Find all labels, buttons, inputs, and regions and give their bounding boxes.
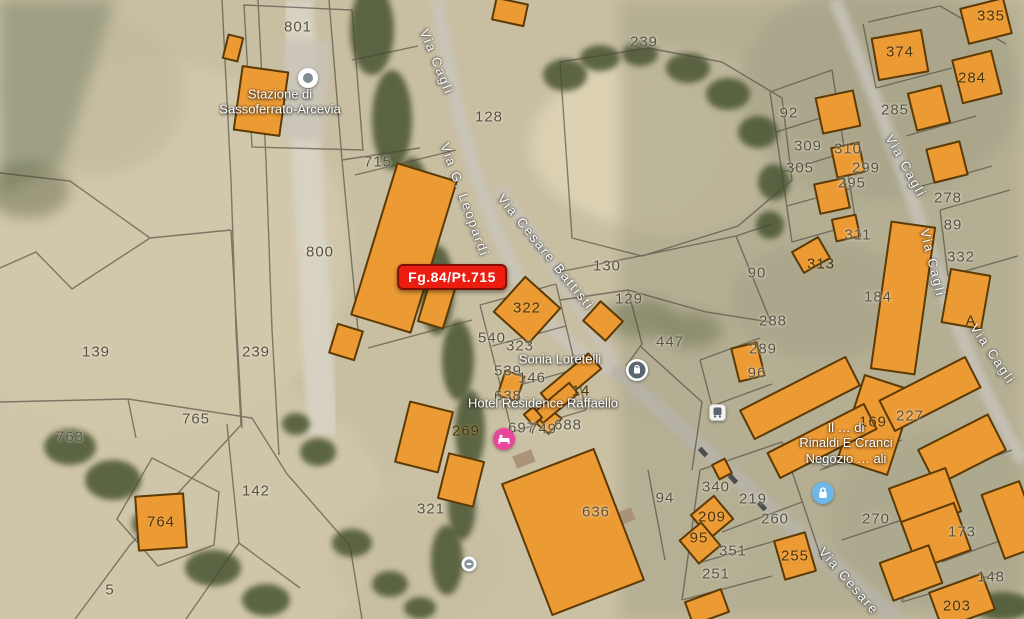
parcel-label: 148 [977,569,1005,586]
street-name-label: Via Cesare Battisti [495,191,598,313]
sonia-loretelli-label: Sonia Loretelli [519,351,601,366]
parcel-label: 95 [690,530,709,547]
parcel-label: 332 [947,249,975,266]
parcel-label: 129 [615,291,643,308]
train-station-label: Stazione diSassoferrato-Arcevia [219,87,340,118]
parcel-label: 139 [82,344,110,361]
poi-label-line: Rinaldi E Cranci [799,435,892,450]
street-name-label: Via Cagli [967,321,1018,387]
parcel-label: 289 [749,341,777,358]
parcel-label: 447 [656,334,684,351]
street-name-label: Via Cagli [883,132,930,200]
parcel-label: 335 [977,8,1005,25]
parcel-label: 313 [807,256,835,273]
parcel-label: 309 [794,138,822,155]
parcel-label: 260 [761,511,789,528]
parcel-label: 94 [656,490,675,507]
street-name-label: Via Cagli [917,227,948,298]
parcel-label: 311 [845,227,872,244]
badge-text: Fg.84/Pt.715 [408,269,496,285]
parcel-label: 130 [593,258,621,275]
parcel-label: 285 [881,102,909,119]
parcel-label: 203 [943,598,971,615]
parcel-label: 219 [739,491,767,508]
parcel-label: 288 [759,313,787,330]
parcel-label: 305 [786,160,814,177]
parcel-label: 173 [948,524,976,541]
parcel-label: 374 [886,44,914,61]
parcel-label: 96 [748,365,767,382]
parcel-label: 636 [582,504,610,521]
poi-label-line: Negozio … ali [799,451,892,466]
parcel-label: 540 [478,330,506,347]
poi-label-line: Stazione di [219,87,340,102]
poi-label-line: Hotel Residence Raffaello [468,395,618,410]
parcel-label: 715 [364,154,392,171]
parcel-label: 278 [934,190,962,207]
hotel-residence-raffaello-label: Hotel Residence Raffaello [468,395,618,410]
parcel-label: 765 [182,411,210,428]
street-name-label: Via Cagli [417,27,457,97]
parcel-label: 146 [518,370,546,387]
poi-label-line: Sonia Loretelli [519,351,601,366]
parcel-label: 239 [630,34,658,51]
parcel-label: 142 [242,483,270,500]
labels-layer: 8012393743352841289228571530931030529929… [0,0,1024,619]
parcel-label: 92 [780,105,799,122]
parcel-label: 321 [417,501,445,518]
parcel-label: 351 [719,543,747,560]
poi-label-line: Il … di [799,420,892,435]
parcel-label: 284 [958,70,986,87]
parcel-label: 801 [284,19,312,36]
parcel-label: 209 [698,509,726,526]
parcel-label: 89 [944,217,963,234]
parcel-label: 239 [242,344,270,361]
parcel-label: 688 [554,417,582,434]
parcel-label: 184 [864,289,892,306]
poi-label-line: Sassoferrato-Arcevia [219,102,340,117]
parcel-label: 340 [702,479,730,496]
parcel-label: 800 [306,244,334,261]
satellite-cadastral-map[interactable]: 8012393743352841289228571530931030529929… [0,0,1024,619]
parcel-label: 270 [862,511,890,528]
rinaldi-store-label: Il … diRinaldi E CranciNegozio … ali [799,420,892,466]
street-name-label: Via G. Leopardi [437,141,492,259]
parcel-label: 255 [781,548,809,565]
parcel-label: 764 [147,514,175,531]
parcel-label: 251 [702,566,730,583]
parcel-label: 269 [452,423,480,440]
parcel-label: 5 [105,582,114,599]
parcel-label: 90 [748,265,767,282]
street-name-label: Via Cesare [816,544,882,617]
parcel-label: 763 [56,429,84,446]
parcel-label: 310 [834,141,862,158]
parcel-label: 227 [896,408,924,425]
parcel-label: 128 [475,109,503,126]
parcel-label: 322 [513,300,541,317]
parcel-label: 749 [529,421,557,438]
cadastral-reference-badge: Fg.84/Pt.715 [397,264,507,290]
parcel-label: 295 [838,175,866,192]
